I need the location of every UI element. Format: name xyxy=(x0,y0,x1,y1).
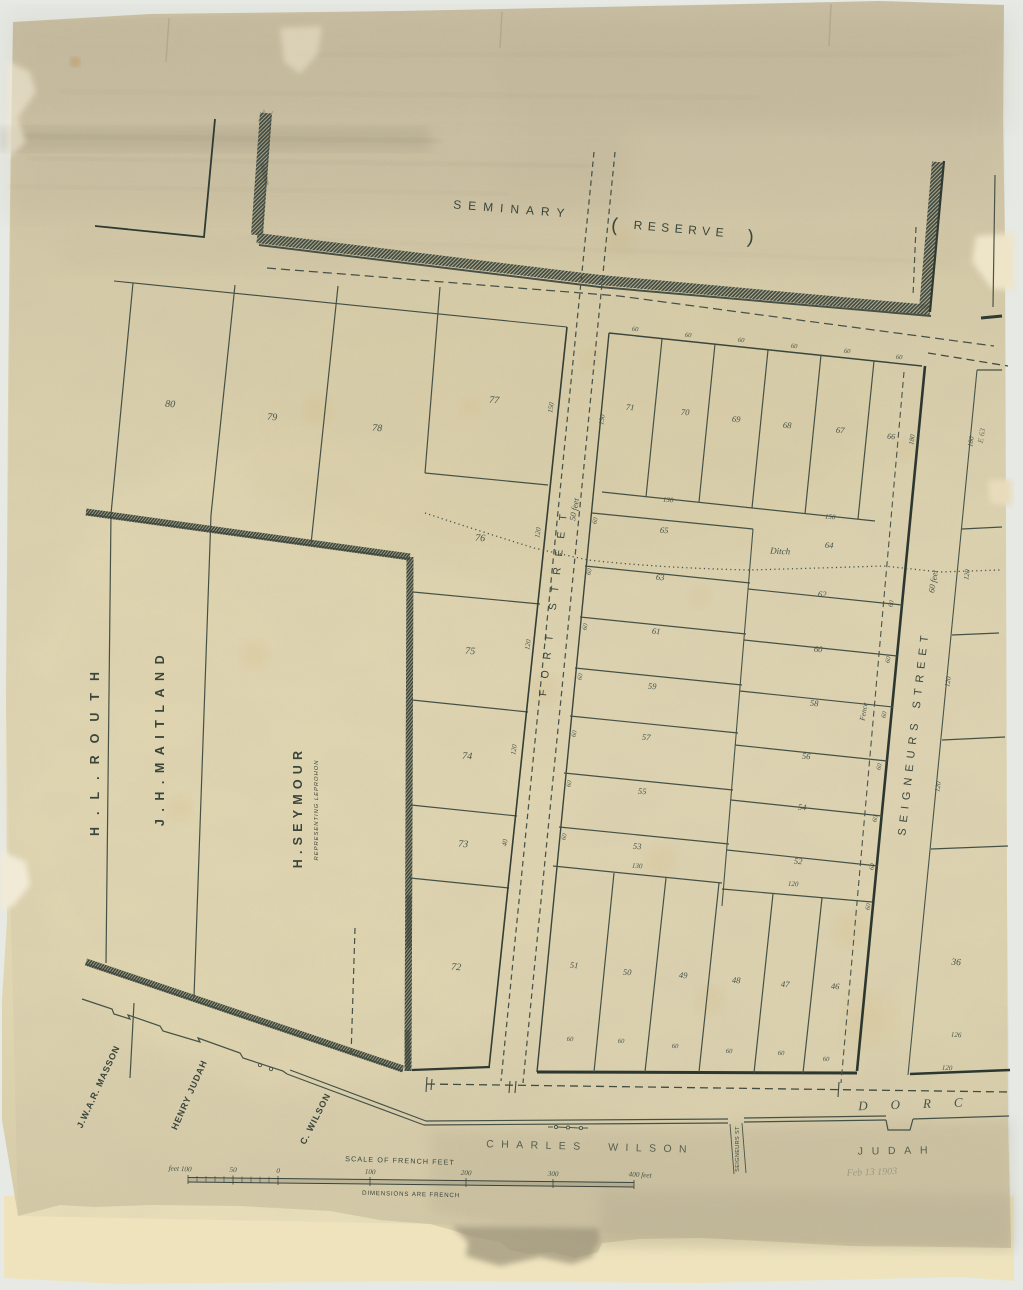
svg-text:60: 60 xyxy=(778,1050,786,1057)
svg-text:71: 71 xyxy=(626,402,635,413)
svg-text:70: 70 xyxy=(681,407,691,418)
svg-text:66: 66 xyxy=(887,432,896,442)
svg-text:JUDAH: JUDAH xyxy=(858,1144,937,1157)
svg-text:100: 100 xyxy=(365,1168,377,1177)
svg-text:36: 36 xyxy=(950,958,961,969)
svg-text:Ditch: Ditch xyxy=(769,545,791,556)
svg-text:56: 56 xyxy=(802,751,812,762)
svg-text:59: 59 xyxy=(648,681,658,692)
svg-text:64: 64 xyxy=(825,540,835,551)
svg-text:120: 120 xyxy=(788,880,800,889)
svg-text:130: 130 xyxy=(632,862,644,871)
svg-text:63: 63 xyxy=(656,572,665,583)
svg-text:72: 72 xyxy=(451,962,462,974)
svg-text:60: 60 xyxy=(672,1043,680,1050)
svg-text:H.L.ROUTH: H.L.ROUTH xyxy=(88,660,102,836)
svg-text:J.H.MAITLAND: J.H.MAITLAND xyxy=(153,648,167,826)
svg-text:68: 68 xyxy=(783,420,793,431)
svg-text:47: 47 xyxy=(781,979,791,990)
svg-text:54: 54 xyxy=(798,802,808,813)
svg-text:48: 48 xyxy=(732,975,742,986)
svg-text:69: 69 xyxy=(732,414,742,425)
svg-text:300: 300 xyxy=(547,1170,560,1179)
svg-text:50: 50 xyxy=(623,967,633,978)
svg-text:60: 60 xyxy=(567,1036,575,1043)
svg-text:49: 49 xyxy=(679,970,689,981)
svg-text:78: 78 xyxy=(372,423,383,435)
svg-text:SEIGNEURS ST: SEIGNEURS ST xyxy=(735,1126,741,1172)
svg-text:46: 46 xyxy=(831,981,841,992)
svg-text:79: 79 xyxy=(267,412,278,424)
svg-text:400 feet: 400 feet xyxy=(628,1170,652,1179)
svg-text:126: 126 xyxy=(951,1031,962,1040)
svg-text:150: 150 xyxy=(825,513,837,522)
svg-text:67: 67 xyxy=(836,425,846,436)
svg-text:200: 200 xyxy=(461,1169,473,1178)
svg-text:77: 77 xyxy=(489,395,501,407)
svg-text:65: 65 xyxy=(660,525,669,536)
svg-text:55: 55 xyxy=(638,786,647,797)
svg-text:60: 60 xyxy=(726,1048,734,1055)
svg-text:74: 74 xyxy=(462,751,473,763)
svg-text:62: 62 xyxy=(818,589,828,600)
svg-text:58: 58 xyxy=(810,698,820,709)
svg-text:60: 60 xyxy=(618,1038,626,1045)
svg-text:75: 75 xyxy=(465,646,476,658)
svg-text:51: 51 xyxy=(570,960,579,971)
svg-text:130: 130 xyxy=(663,496,675,505)
svg-text:feet 100: feet 100 xyxy=(168,1164,192,1173)
svg-text:52: 52 xyxy=(794,856,804,867)
svg-text:H.SEYMOUR: H.SEYMOUR xyxy=(291,746,305,869)
svg-text:60: 60 xyxy=(814,644,824,655)
svg-text:76: 76 xyxy=(475,533,486,545)
svg-text:61: 61 xyxy=(652,626,661,637)
svg-text:REPRESENTING LEPROHON: REPRESENTING LEPROHON xyxy=(314,760,320,861)
svg-text:53: 53 xyxy=(633,841,642,852)
svg-text:57: 57 xyxy=(642,732,652,743)
svg-text:Feb 13 1903: Feb 13 1903 xyxy=(845,1166,897,1179)
svg-text:73: 73 xyxy=(458,839,469,851)
svg-text:80: 80 xyxy=(165,399,176,411)
svg-text:120: 120 xyxy=(942,1064,953,1073)
svg-text:50: 50 xyxy=(229,1166,237,1174)
svg-text:60: 60 xyxy=(823,1056,831,1063)
